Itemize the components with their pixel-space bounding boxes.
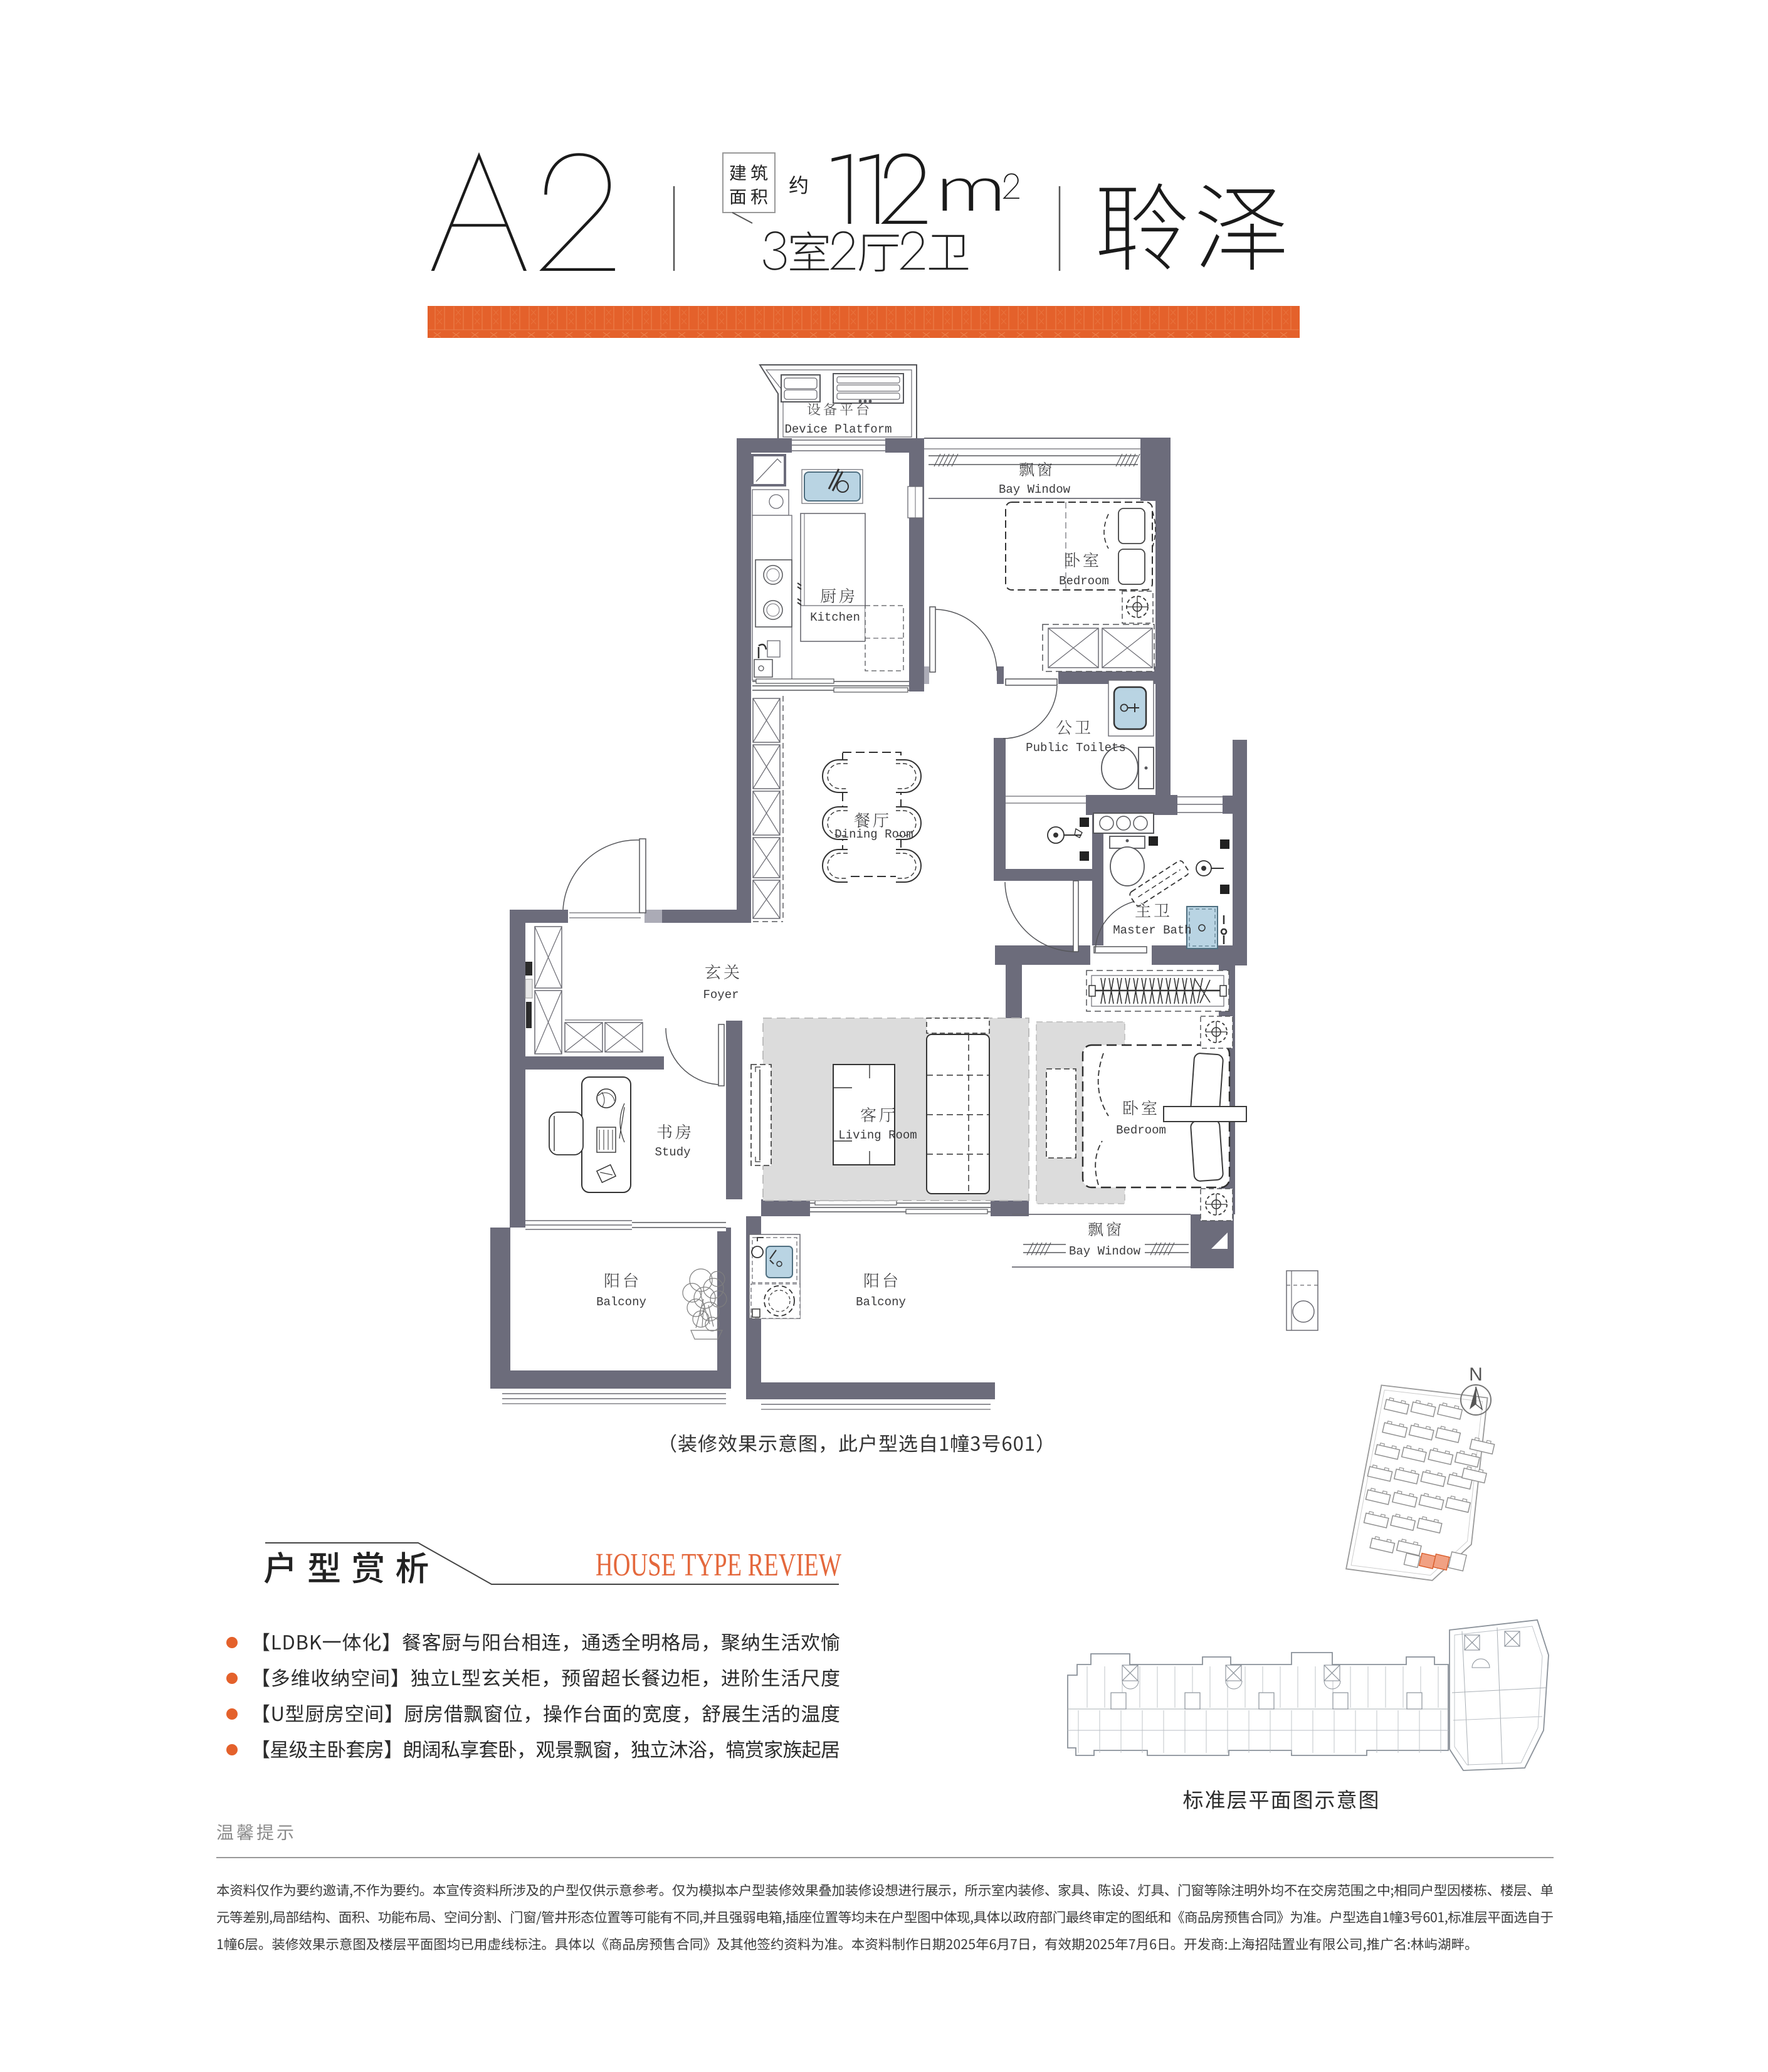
svg-text:Bedroom: Bedroom xyxy=(1116,1123,1166,1137)
svg-text:Public Toilets: Public Toilets xyxy=(1026,741,1126,755)
svg-text:Foyer: Foyer xyxy=(703,988,739,1002)
svg-text:Master Bath: Master Bath xyxy=(1113,923,1191,937)
svg-text:Bay Window: Bay Window xyxy=(1069,1244,1141,1258)
svg-text:Balcony: Balcony xyxy=(856,1295,906,1309)
svg-text:Device Platform: Device Platform xyxy=(784,423,892,436)
svg-text:HOUSE TYPE REVIEW: HOUSE TYPE REVIEW xyxy=(596,1547,841,1583)
svg-text:Dining Room: Dining Room xyxy=(834,828,913,841)
svg-text:Living Room: Living Room xyxy=(838,1128,917,1142)
svg-text:Balcony: Balcony xyxy=(596,1295,646,1309)
svg-text:N: N xyxy=(1469,1364,1483,1385)
svg-text:Kitchen: Kitchen xyxy=(810,611,860,624)
svg-text:Bay Window: Bay Window xyxy=(999,483,1071,497)
svg-text:Study: Study xyxy=(655,1145,690,1159)
svg-text:Bedroom: Bedroom xyxy=(1059,574,1109,588)
